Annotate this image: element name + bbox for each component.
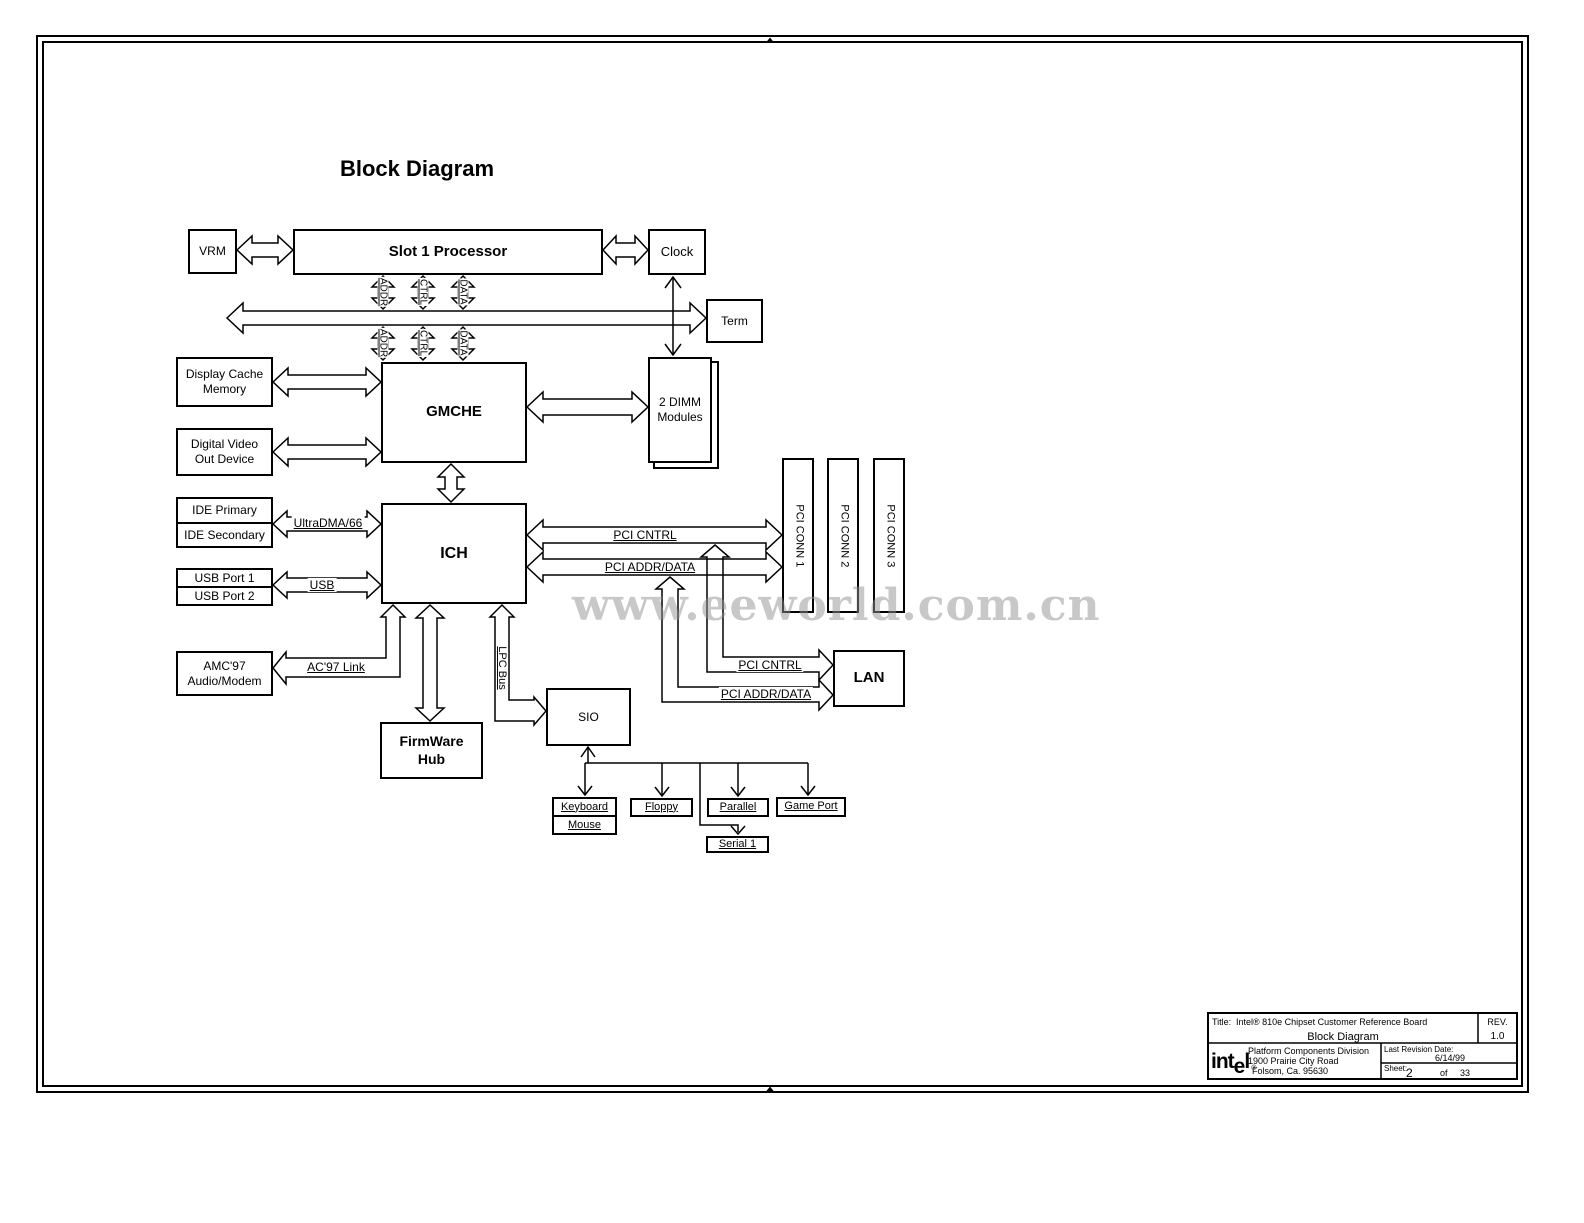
arrow-gmche-dimm xyxy=(527,392,648,422)
dvo-label: Digital VideoOut Device xyxy=(191,437,258,467)
mouse-label: Mouse xyxy=(554,815,615,833)
display-cache-label: Display CacheMemory xyxy=(186,367,263,397)
block-firmware-hub: FirmWareHub xyxy=(380,722,483,779)
floppy-label: Floppy xyxy=(645,801,678,815)
bus-arrows xyxy=(237,236,648,721)
sio-label: SIO xyxy=(578,710,599,725)
block-digital-video-out: Digital VideoOut Device xyxy=(176,428,273,476)
net-usb: USB xyxy=(308,578,337,592)
keyboard-label: Keyboard xyxy=(554,799,615,815)
block-vrm: VRM xyxy=(188,229,237,274)
titleblock-sheet-total: 33 xyxy=(1460,1068,1470,1078)
titleblock-sheet-label: Sheet: xyxy=(1384,1064,1407,1073)
block-ich: ICH xyxy=(381,503,527,604)
serial1-label: Serial 1 xyxy=(719,838,756,852)
net-ac97-link: AC'97 Link xyxy=(305,660,367,674)
titleblock-address1: 1900 Prairie City Road xyxy=(1248,1056,1339,1066)
block-clock: Clock xyxy=(648,229,706,275)
block-serial1: Serial 1 xyxy=(706,836,769,853)
arrow-gmche-ich xyxy=(438,464,464,502)
game-port-label: Game Port xyxy=(784,800,837,814)
net-pci-cntrl: PCI CNTRL xyxy=(611,528,678,542)
watermark: www.eeworld.com.cn xyxy=(572,580,1101,631)
schematic-page: www.eeworld.com.cn Block Diagram VRM Slo… xyxy=(0,0,1584,1223)
usb-port2-label: USB Port 2 xyxy=(178,586,271,604)
dimm-label: 2 DIMMModules xyxy=(657,395,702,425)
vrm-label: VRM xyxy=(199,244,226,259)
net-lpc-bus: LPC Bus xyxy=(496,645,508,690)
zone-mark-bottom xyxy=(766,1087,774,1092)
block-parallel: Parallel xyxy=(707,798,769,817)
arrow-ich-firmware xyxy=(416,605,444,721)
titleblock-sheet-number: 2 xyxy=(1406,1066,1413,1080)
net-lan-pci-addr-data: PCI ADDR/DATA xyxy=(719,687,813,701)
block-game-port: Game Port xyxy=(776,797,846,817)
net-ultradma: UltraDMA/66 xyxy=(292,516,365,530)
clock-label: Clock xyxy=(661,244,694,260)
block-sio: SIO xyxy=(546,688,631,746)
arrow-displaycache-gmche xyxy=(273,368,381,396)
block-keyboard-mouse: Keyboard Mouse xyxy=(552,797,617,835)
net-data-lower: DATA xyxy=(458,329,469,356)
ide-primary-label: IDE Primary xyxy=(178,499,271,522)
net-addr-lower: ADDR xyxy=(378,328,389,358)
net-lan-pci-cntrl: PCI CNTRL xyxy=(736,658,803,672)
titleblock-rev-label: REV. xyxy=(1478,1017,1517,1027)
block-term: Term xyxy=(706,299,763,343)
block-dimm-modules: 2 DIMMModules xyxy=(648,357,712,463)
block-floppy: Floppy xyxy=(630,798,693,817)
slot1-label: Slot 1 Processor xyxy=(389,243,507,262)
titleblock-rev: 1.0 xyxy=(1478,1031,1517,1042)
block-ide-ports: IDE Primary IDE Secondary xyxy=(176,497,273,548)
parallel-label: Parallel xyxy=(720,801,757,815)
block-gmche: GMCHE xyxy=(381,362,527,463)
titleblock-title: Intel® 810e Chipset Customer Reference B… xyxy=(1236,1017,1427,1027)
arrow-dvo-gmche xyxy=(273,438,381,466)
arrow-slot1-clock xyxy=(603,236,648,264)
net-ctrl-upper: CTRL xyxy=(418,278,429,306)
arrow-vrm-slot1 xyxy=(237,236,293,264)
firmware-hub-label: FirmWareHub xyxy=(399,733,463,768)
titleblock-sheet-of: of xyxy=(1440,1068,1448,1078)
pci-conn3-label: PCI CONN 3 xyxy=(882,504,896,567)
block-lan: LAN xyxy=(833,650,905,707)
titleblock-address2: Folsom, Ca. 95630 xyxy=(1252,1066,1328,1076)
titleblock-division: Platform Components Division xyxy=(1248,1046,1369,1056)
titleblock-title-label: Title: xyxy=(1212,1017,1231,1027)
block-usb-ports: USB Port 1 USB Port 2 xyxy=(176,568,273,606)
page-title: Block Diagram xyxy=(297,156,537,182)
ide-secondary-label: IDE Secondary xyxy=(178,522,271,547)
ich-label: ICH xyxy=(440,544,468,564)
net-data-upper: DATA xyxy=(458,278,469,305)
amc97-label: AMC'97Audio/Modem xyxy=(187,659,261,689)
net-pci-addr-data: PCI ADDR/DATA xyxy=(603,560,697,574)
zone-mark-top xyxy=(766,38,774,43)
net-ctrl-lower: CTRL xyxy=(418,329,429,357)
pci-conn1-label: PCI CONN 1 xyxy=(791,504,805,567)
gmche-label: GMCHE xyxy=(426,403,482,422)
block-display-cache: Display CacheMemory xyxy=(176,357,273,407)
lan-label: LAN xyxy=(854,669,885,688)
term-label: Term xyxy=(721,314,748,329)
net-addr-upper: ADDR xyxy=(378,277,389,307)
titleblock-subtitle: Block Diagram xyxy=(1208,1031,1478,1043)
usb-port1-label: USB Port 1 xyxy=(178,570,271,586)
block-amc97: AMC'97Audio/Modem xyxy=(176,651,273,696)
titleblock-lastrev-date: 6/14/99 xyxy=(1435,1053,1465,1063)
block-slot1-processor: Slot 1 Processor xyxy=(293,229,603,275)
pci-conn2-label: PCI CONN 2 xyxy=(836,504,850,567)
